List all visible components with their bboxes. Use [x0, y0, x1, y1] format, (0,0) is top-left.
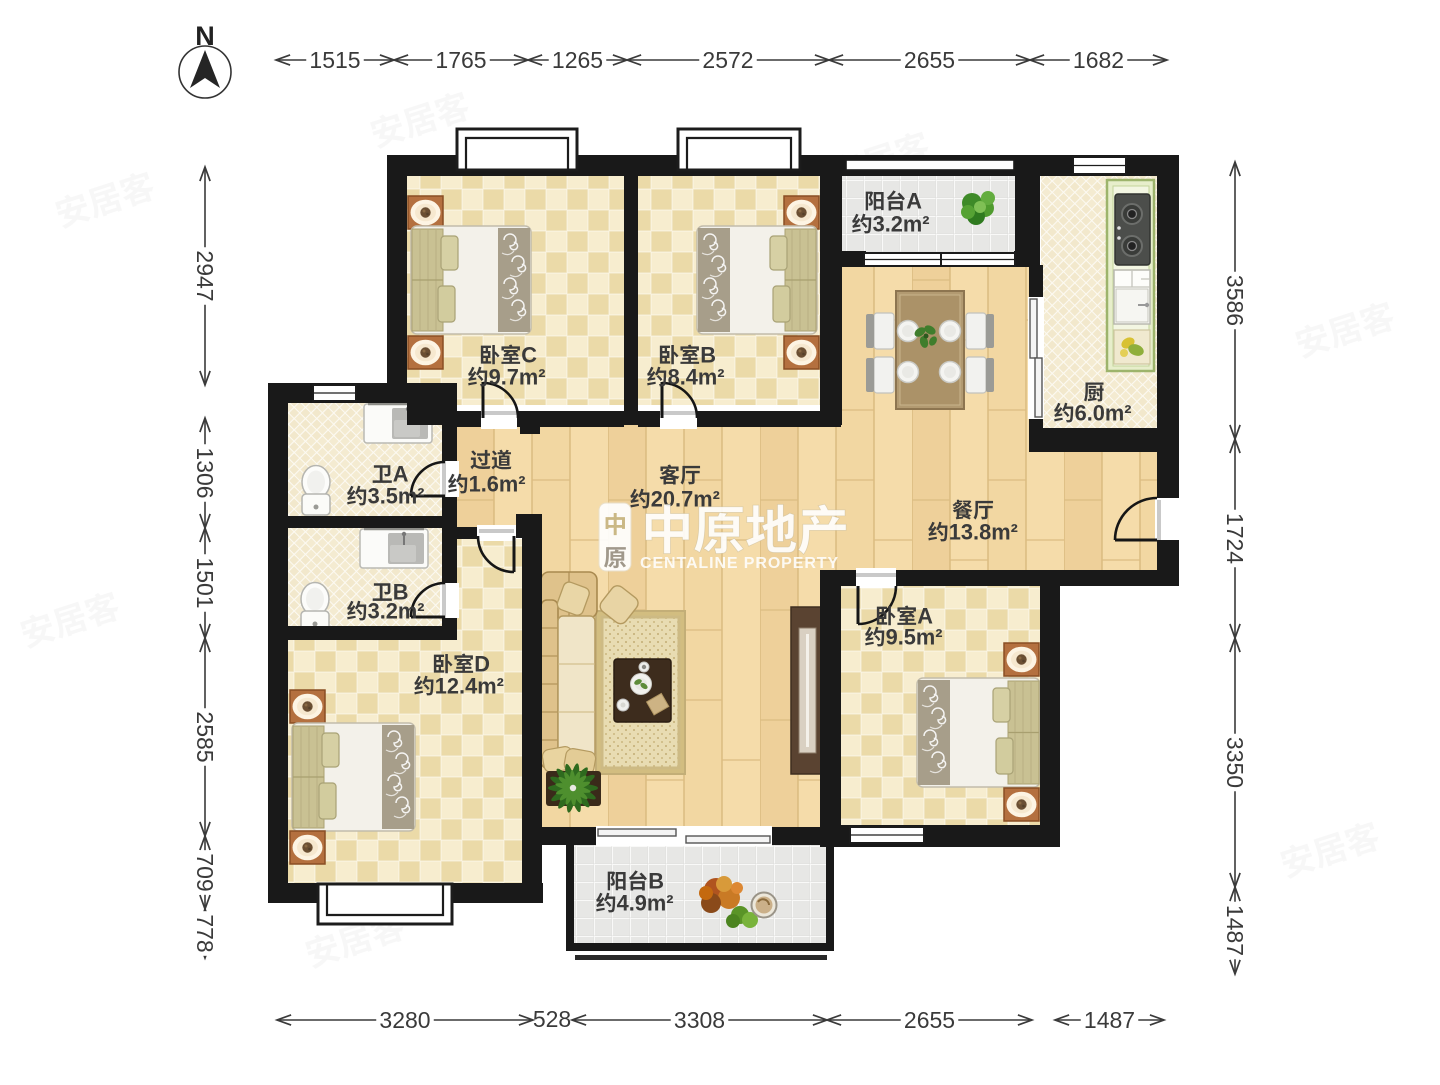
- svg-text:9.7m²: 9.7m²: [489, 365, 546, 390]
- svg-text:1.6m²: 1.6m²: [469, 472, 526, 497]
- svg-text:1501: 1501: [192, 557, 218, 608]
- svg-text:1765: 1765: [435, 47, 486, 73]
- svg-text:N: N: [195, 21, 215, 51]
- svg-text:1306: 1306: [192, 447, 218, 498]
- svg-text:A: A: [906, 189, 922, 214]
- svg-text:2572: 2572: [702, 47, 753, 73]
- svg-text:2655: 2655: [904, 1007, 955, 1033]
- svg-text:12.4m²: 12.4m²: [435, 674, 504, 699]
- svg-text:13.8m²: 13.8m²: [949, 520, 1018, 545]
- svg-text:3.5m²: 3.5m²: [368, 484, 425, 509]
- svg-text:4.9m²: 4.9m²: [617, 891, 674, 916]
- svg-text:3.2m²: 3.2m²: [873, 212, 930, 237]
- svg-text:1724: 1724: [1222, 513, 1248, 564]
- svg-text:CENTALINE PROPERTY: CENTALINE PROPERTY: [640, 555, 839, 572]
- svg-text:8.4m²: 8.4m²: [668, 365, 725, 390]
- svg-text:1265: 1265: [552, 47, 603, 73]
- svg-text:2655: 2655: [904, 47, 955, 73]
- svg-text:1515: 1515: [309, 47, 360, 73]
- svg-text:1682: 1682: [1073, 47, 1124, 73]
- svg-text:3280: 3280: [379, 1007, 430, 1033]
- svg-text:3308: 3308: [674, 1007, 725, 1033]
- svg-text:1487: 1487: [1222, 905, 1248, 956]
- svg-text:1487: 1487: [1084, 1007, 1135, 1033]
- svg-text:3586: 3586: [1222, 275, 1248, 326]
- svg-text:6.0m²: 6.0m²: [1075, 401, 1132, 426]
- svg-text:2947: 2947: [192, 250, 218, 301]
- svg-text:709: 709: [192, 853, 218, 891]
- svg-text:528: 528: [533, 1006, 571, 1032]
- svg-text:3350: 3350: [1222, 737, 1248, 788]
- svg-text:3.2m²: 3.2m²: [368, 599, 425, 624]
- svg-text:9.5m²: 9.5m²: [886, 625, 943, 650]
- svg-text:778: 778: [192, 914, 218, 952]
- svg-text:2585: 2585: [192, 711, 218, 762]
